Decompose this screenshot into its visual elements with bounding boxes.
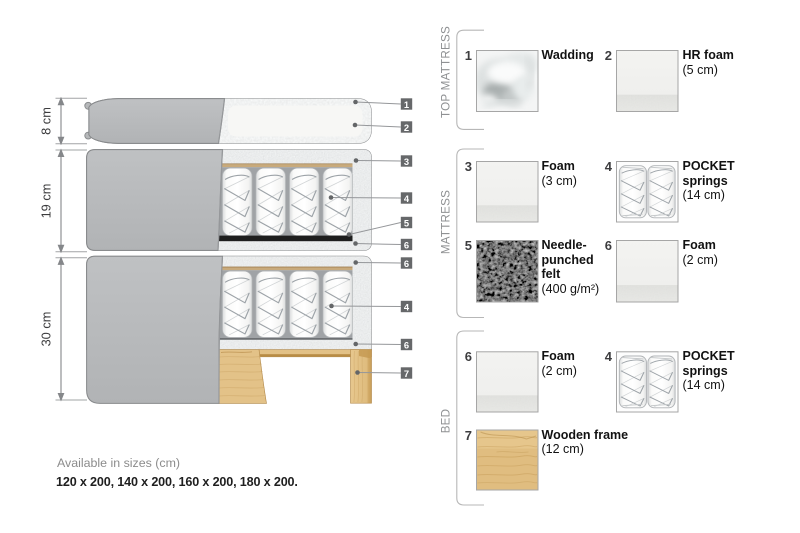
svg-text:7: 7	[404, 368, 409, 379]
svg-text:6: 6	[404, 258, 409, 269]
svg-text:6: 6	[404, 239, 409, 250]
svg-text:5: 5	[404, 217, 409, 228]
svg-text:6: 6	[404, 339, 409, 350]
svg-text:2: 2	[404, 122, 409, 133]
svg-text:4: 4	[404, 193, 410, 204]
svg-text:4: 4	[404, 301, 410, 312]
svg-text:3: 3	[404, 156, 409, 167]
svg-text:1: 1	[404, 99, 409, 110]
